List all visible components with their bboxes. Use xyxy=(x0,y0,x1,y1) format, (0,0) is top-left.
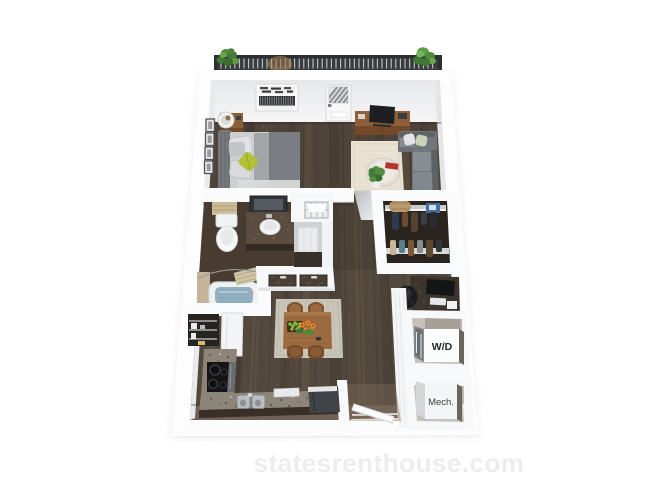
svg-text:Mech.: Mech. xyxy=(428,397,454,408)
svg-text:W/D: W/D xyxy=(432,341,453,353)
svg-text:statesrenthouse.com: statesrenthouse.com xyxy=(253,448,524,478)
